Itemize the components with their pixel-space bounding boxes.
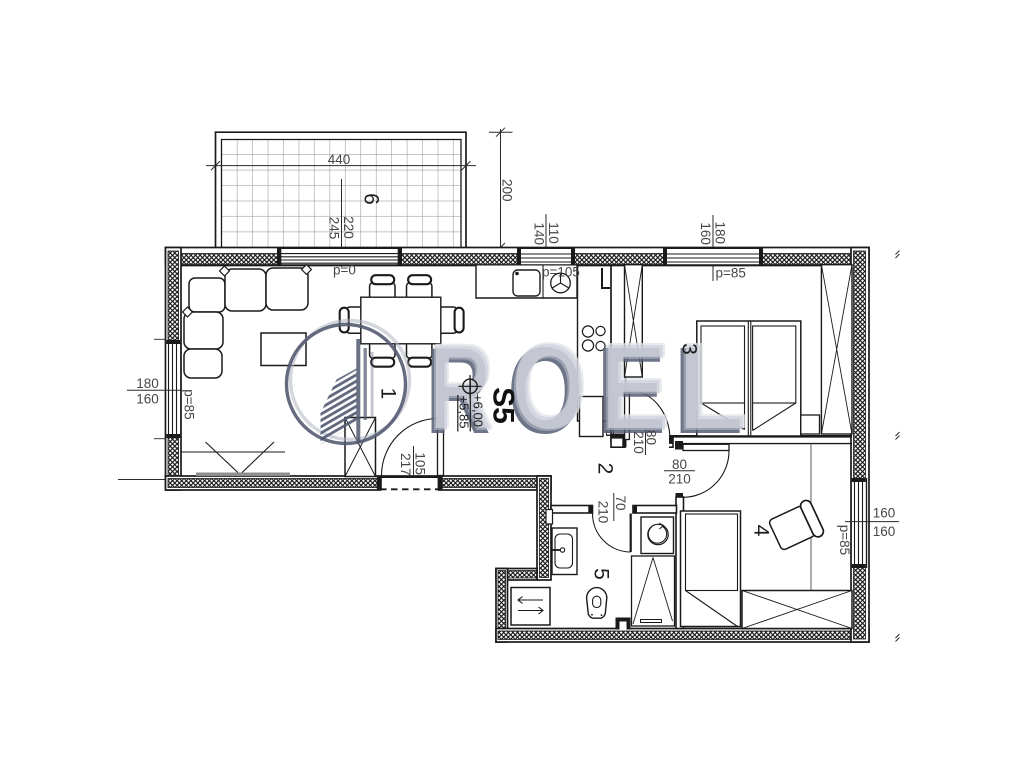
svg-text:p=85: p=85 <box>716 266 746 281</box>
svg-text:440: 440 <box>328 152 351 167</box>
svg-text:p=85: p=85 <box>837 525 852 555</box>
svg-text:6: 6 <box>360 193 383 205</box>
svg-text:5: 5 <box>590 568 613 580</box>
svg-text:3: 3 <box>678 343 701 355</box>
svg-text:105: 105 <box>413 452 428 475</box>
svg-text:70: 70 <box>613 495 628 510</box>
svg-text:210: 210 <box>595 501 610 524</box>
svg-text:2: 2 <box>593 463 616 475</box>
svg-text:160: 160 <box>136 392 159 407</box>
svg-text:160: 160 <box>873 506 896 521</box>
svg-text:110: 110 <box>546 222 561 244</box>
svg-text:160: 160 <box>873 524 896 539</box>
svg-text:+5,85: +5,85 <box>457 396 472 429</box>
svg-text:S5: S5 <box>487 387 520 424</box>
svg-text:O: O <box>510 318 586 456</box>
svg-text:140: 140 <box>532 223 547 246</box>
svg-text:4: 4 <box>750 525 773 537</box>
svg-text:p=85: p=85 <box>182 389 197 419</box>
svg-text:L: L <box>676 320 746 457</box>
svg-text:210: 210 <box>668 472 691 487</box>
svg-text:180: 180 <box>136 376 159 391</box>
svg-text:+6,00: +6,00 <box>471 394 486 427</box>
svg-text:220: 220 <box>341 216 356 239</box>
svg-text:245: 245 <box>326 217 341 240</box>
svg-text:217: 217 <box>398 453 413 476</box>
svg-text:1: 1 <box>377 388 400 400</box>
svg-text:p=0: p=0 <box>333 263 356 278</box>
svg-text:180: 180 <box>713 222 728 245</box>
svg-text:R: R <box>428 318 493 456</box>
svg-text:160: 160 <box>698 222 713 245</box>
svg-text:p=105: p=105 <box>542 265 580 280</box>
svg-text:210: 210 <box>631 431 646 454</box>
svg-text:80: 80 <box>672 457 687 472</box>
svg-text:200: 200 <box>500 179 515 202</box>
